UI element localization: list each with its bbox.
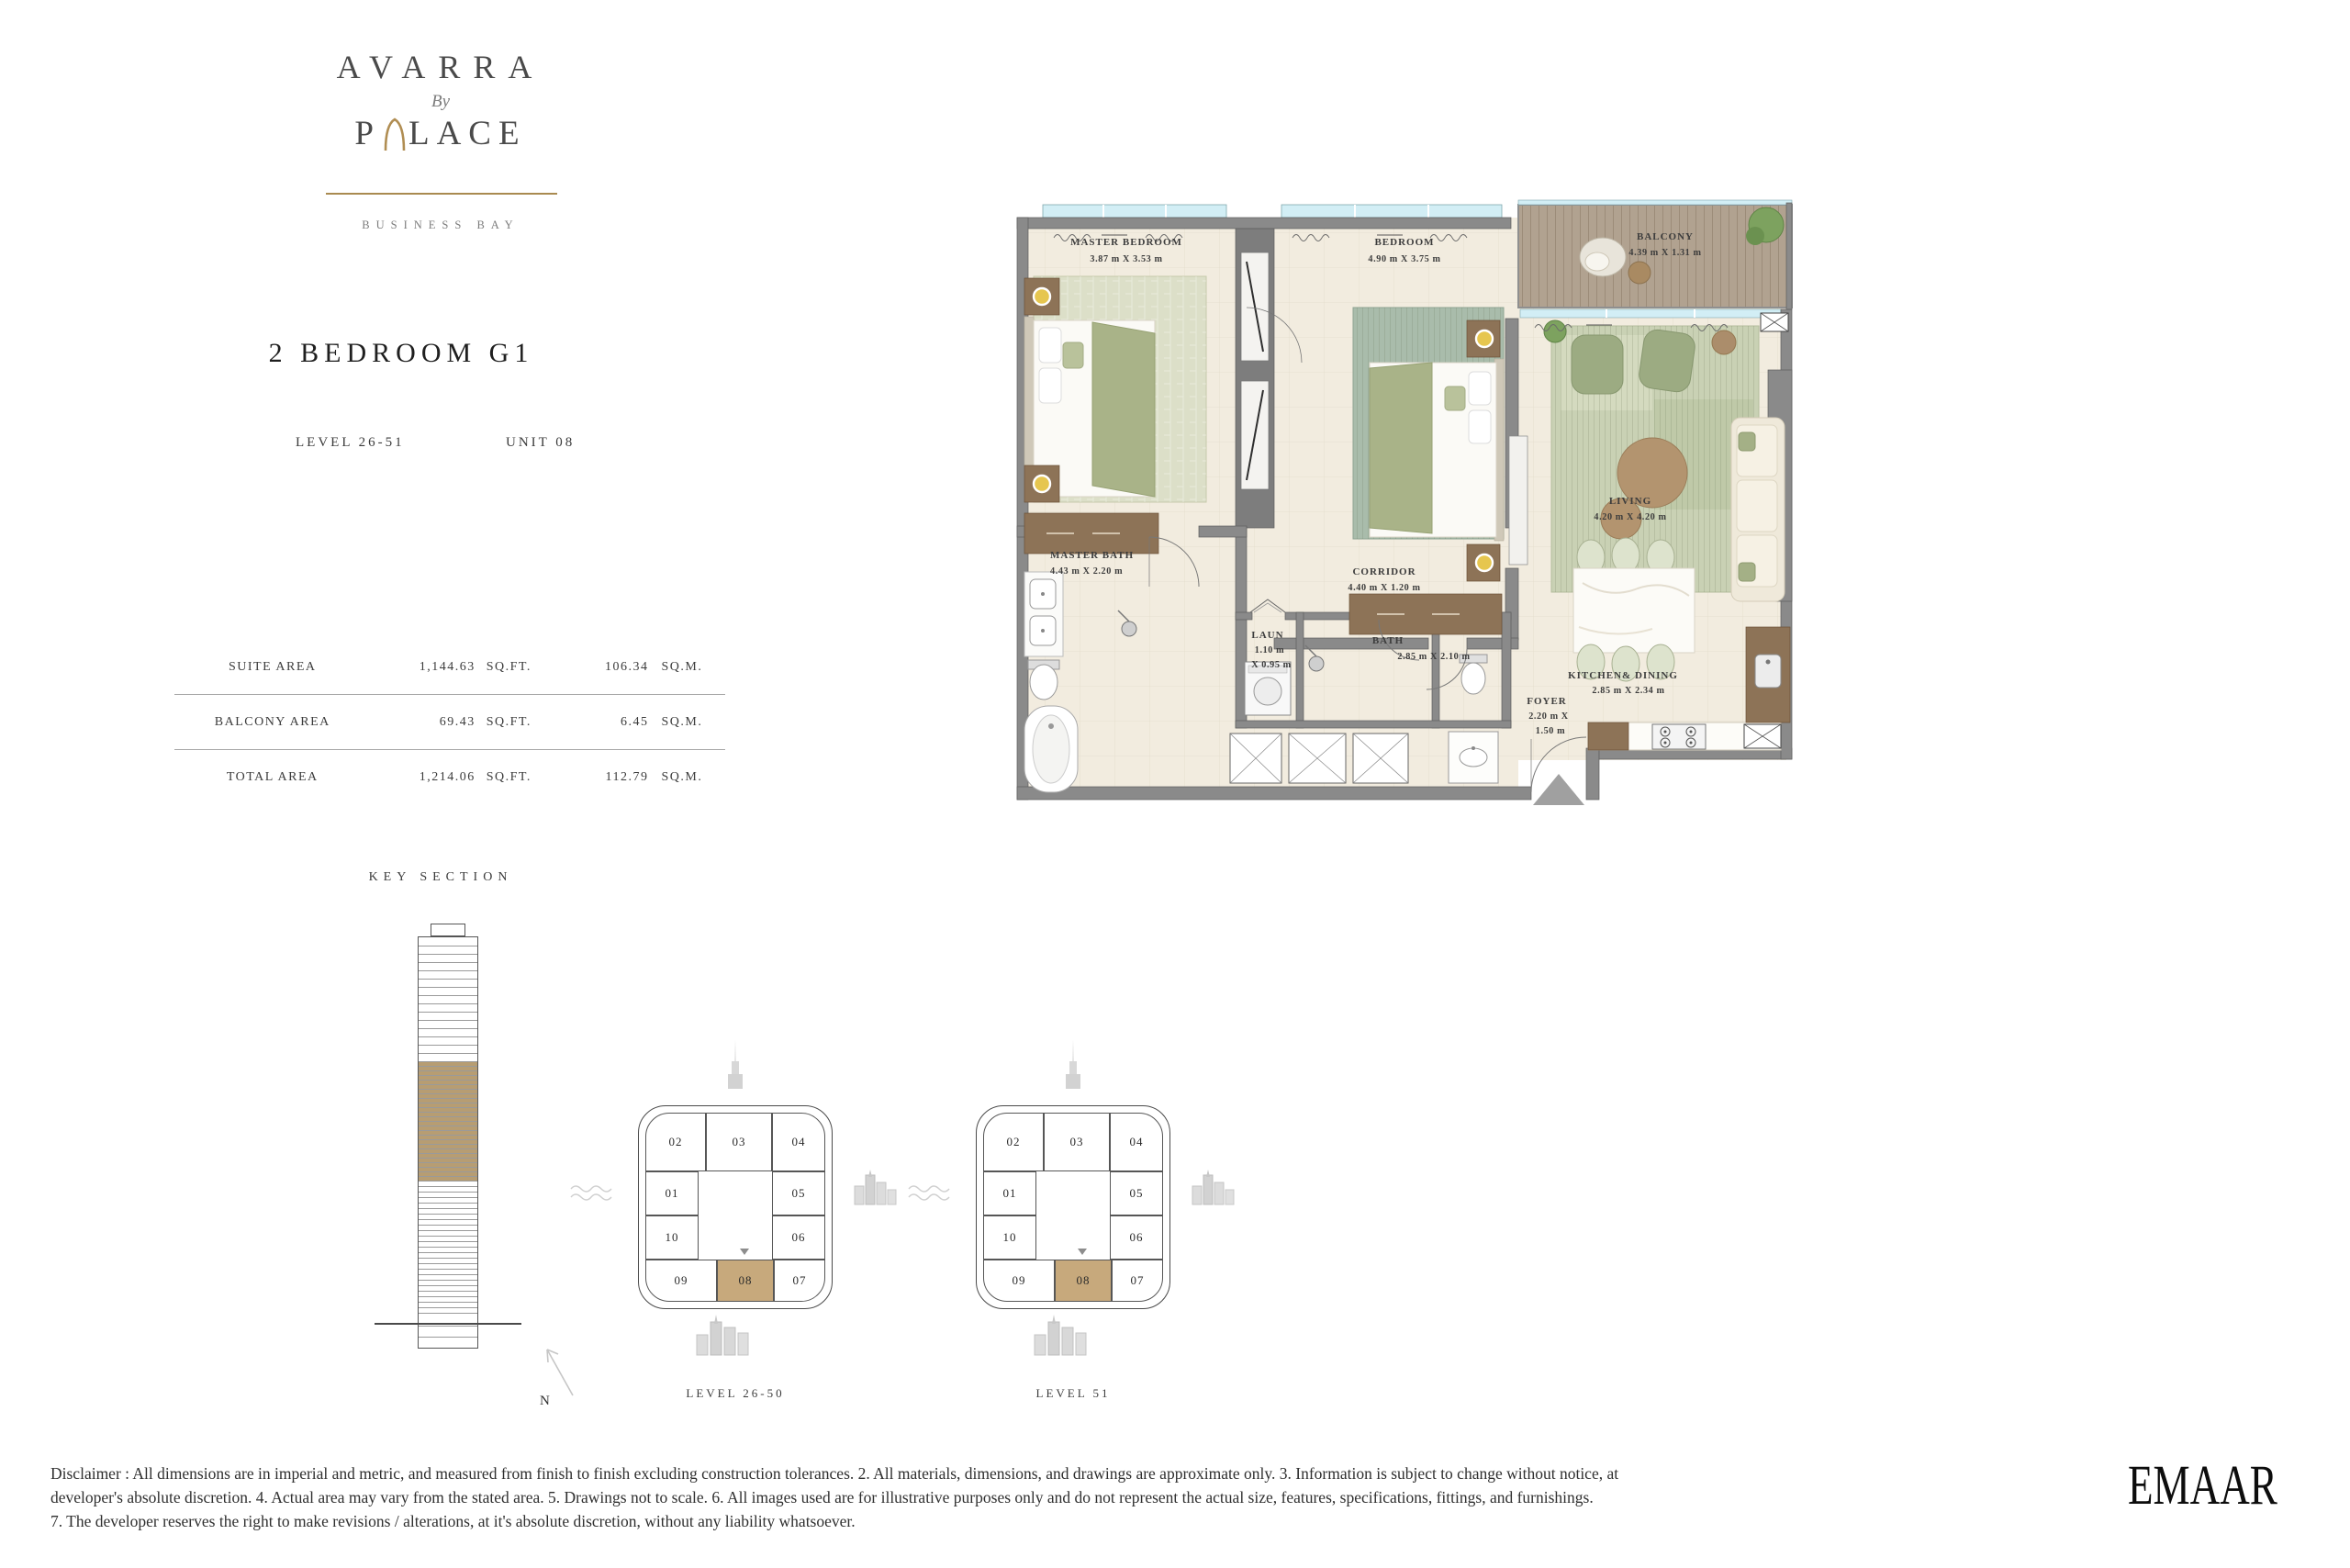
room-dims: 2.20 m X — [1528, 711, 1569, 722]
key-plan-level-51: 02 03 04 01 05 10 06 09 08 07 — [976, 1105, 1170, 1309]
room-dims: 4.39 m X 1.31 m — [1628, 248, 1701, 258]
unit-number: 07 — [793, 1273, 807, 1288]
unit-08-marker — [740, 1249, 749, 1255]
room-label: LIVING — [1609, 496, 1651, 507]
page-title: 2 BEDROOM G1 — [181, 338, 621, 369]
unit-number: 01 — [666, 1186, 679, 1201]
city-buildings-icon — [1191, 1170, 1237, 1206]
area-sqm-value: 6.45 — [557, 715, 648, 730]
room-label: LAUN — [1251, 630, 1283, 641]
room-dims: 3.87 m X 3.53 m — [1090, 254, 1162, 264]
brand-palace: P LACE — [275, 114, 606, 153]
unit-number: 02 — [669, 1135, 683, 1149]
room-label: KITCHEN& DINING — [1568, 670, 1678, 681]
arch-icon — [383, 118, 407, 151]
floor-plan: MASTER BEDROOM 3.87 m X 3.53 m BEDROOM 4… — [1010, 197, 1799, 808]
area-table: SUITE AREA 1,144.63 SQ.FT. 106.34 SQ.M. … — [174, 640, 725, 804]
unit-number: 01 — [1003, 1186, 1017, 1201]
unit-cell-01: 01 — [983, 1171, 1036, 1215]
area-row-label: BALCONY AREA — [174, 715, 371, 730]
north-label: N — [540, 1394, 550, 1409]
key-section-title: KEY SECTION — [303, 870, 578, 885]
room-label: MASTER BATH — [1050, 550, 1134, 561]
unit-number: 07 — [1131, 1273, 1145, 1288]
unit-cell-09: 09 — [983, 1260, 1055, 1302]
room-dims: X 0.95 m — [1251, 660, 1292, 670]
unit-number: 09 — [675, 1273, 688, 1288]
unit-number: 03 — [733, 1135, 746, 1149]
unit-cell-07: 07 — [1112, 1260, 1163, 1302]
room-label: FOYER — [1527, 696, 1567, 707]
disclaimer-line: developer's absolute discretion. 4. Actu… — [50, 1485, 2134, 1509]
closets — [1230, 732, 1498, 783]
room-label: CORRIDOR — [1352, 566, 1416, 577]
unit-number: 08 — [739, 1273, 753, 1288]
room-dims: 4.90 m X 3.75 m — [1368, 254, 1440, 264]
tower-cap — [431, 924, 465, 936]
unit-cell-04: 04 — [772, 1113, 825, 1171]
room-label: MASTER BEDROOM — [1070, 237, 1182, 248]
unit-number: 10 — [666, 1230, 679, 1245]
unit-cell-01: 01 — [645, 1171, 699, 1215]
emaar-logo: EMAAR — [2128, 1452, 2277, 1518]
brand-palace-left: P — [354, 114, 381, 153]
unit-number: 03 — [1070, 1135, 1084, 1149]
unit-label: UNIT 08 — [506, 435, 575, 451]
area-sqm-unit: SQ.M. — [648, 770, 725, 785]
area-sqft-unit: SQ.FT. — [476, 715, 557, 730]
waves-icon — [570, 1182, 612, 1204]
city-buildings-icon — [853, 1170, 899, 1206]
area-sqm-unit: SQ.M. — [648, 715, 725, 730]
area-row-label: SUITE AREA — [174, 660, 371, 675]
unit-number: 06 — [792, 1230, 806, 1245]
unit-cell-05: 05 — [772, 1171, 825, 1215]
unit-cell-02: 02 — [645, 1113, 706, 1171]
table-row: SUITE AREA 1,144.63 SQ.FT. 106.34 SQ.M. — [174, 640, 725, 695]
unit-cell-03: 03 — [1044, 1113, 1110, 1171]
area-sqft-unit: SQ.FT. — [476, 770, 557, 785]
table-row: BALCONY AREA 69.43 SQ.FT. 6.45 SQ.M. — [174, 695, 725, 750]
unit-cell-05: 05 — [1110, 1171, 1163, 1215]
room-dims: 4.40 m X 1.20 m — [1348, 583, 1420, 593]
unit-08-marker — [1078, 1249, 1087, 1255]
brand-tagline: BUSINESS BAY — [275, 218, 606, 232]
brand-palace-right: LACE — [408, 114, 527, 153]
room-dims: 2.85 m X 2.34 m — [1592, 686, 1664, 696]
unit-cell-10: 10 — [645, 1215, 699, 1260]
room-label: BALCONY — [1637, 231, 1694, 242]
area-sqft-unit: SQ.FT. — [476, 660, 557, 675]
brand-by: By — [275, 92, 606, 112]
burj-khalifa-icon — [1057, 1037, 1090, 1092]
ground-line — [375, 1323, 521, 1325]
waves-icon — [908, 1182, 950, 1204]
area-sqft-value: 69.43 — [371, 715, 476, 730]
disclaimer-line: 7. The developer reserves the right to m… — [50, 1509, 2134, 1533]
room-dims: 1.50 m — [1536, 726, 1565, 736]
area-sqft-value: 1,144.63 — [371, 660, 476, 675]
level-label: LEVEL 26-51 — [296, 435, 405, 451]
unit-number: 02 — [1007, 1135, 1021, 1149]
area-sqft-value: 1,214.06 — [371, 770, 476, 785]
key-section-tower — [418, 936, 478, 1349]
unit-number: 05 — [1130, 1186, 1144, 1201]
burj-khalifa-icon — [719, 1037, 752, 1092]
unit-cell-10: 10 — [983, 1215, 1036, 1260]
room-label: BEDROOM — [1374, 237, 1434, 248]
unit-cell-08-highlighted: 08 — [1055, 1260, 1112, 1302]
unit-number: 06 — [1130, 1230, 1144, 1245]
room-dims: 2.85 m X 2.10 m — [1397, 652, 1470, 662]
disclaimer-line: Disclaimer : All dimensions are in imper… — [50, 1462, 2134, 1485]
unit-cell-06: 06 — [1110, 1215, 1163, 1260]
key-plan-label: LEVEL 26-50 — [638, 1386, 833, 1401]
key-plan-level-26-50: 02 03 04 01 05 10 06 09 08 07 — [638, 1105, 833, 1309]
unit-cell-06: 06 — [772, 1215, 825, 1260]
brand-avarra: AVARRA — [275, 48, 606, 86]
unit-number: 10 — [1003, 1230, 1017, 1245]
area-row-label: TOTAL AREA — [174, 770, 371, 785]
unit-cell-08-highlighted: 08 — [717, 1260, 774, 1302]
skyline-icon — [695, 1315, 759, 1357]
disclaimer: Disclaimer : All dimensions are in imper… — [50, 1462, 2134, 1533]
room-dims: 4.20 m X 4.20 m — [1594, 512, 1666, 522]
unit-cell-09: 09 — [645, 1260, 717, 1302]
area-sqm-value: 112.79 — [557, 770, 648, 785]
table-row: TOTAL AREA 1,214.06 SQ.FT. 112.79 SQ.M. — [174, 750, 725, 804]
unit-cell-07: 07 — [774, 1260, 825, 1302]
unit-cell-02: 02 — [983, 1113, 1044, 1171]
unit-cell-03: 03 — [706, 1113, 772, 1171]
unit-number: 08 — [1077, 1273, 1091, 1288]
unit-number: 04 — [1130, 1135, 1144, 1149]
unit-number: 09 — [1013, 1273, 1026, 1288]
unit-number: 04 — [792, 1135, 806, 1149]
area-sqm-value: 106.34 — [557, 660, 648, 675]
unit-number: 05 — [792, 1186, 806, 1201]
gold-divider — [326, 193, 557, 195]
room-label: BATH — [1372, 635, 1404, 646]
room-dims: 1.10 m — [1255, 645, 1284, 655]
room-dims: 4.43 m X 2.20 m — [1050, 566, 1123, 577]
brochure-page: AVARRA By P LACE BUSINESS BAY 2 BEDROOM … — [0, 0, 2350, 1568]
key-plan-label: LEVEL 51 — [976, 1386, 1170, 1401]
skyline-icon — [1033, 1315, 1097, 1357]
brand-block: AVARRA By P LACE — [275, 48, 606, 153]
unit-cell-04: 04 — [1110, 1113, 1163, 1171]
area-sqm-unit: SQ.M. — [648, 660, 725, 675]
